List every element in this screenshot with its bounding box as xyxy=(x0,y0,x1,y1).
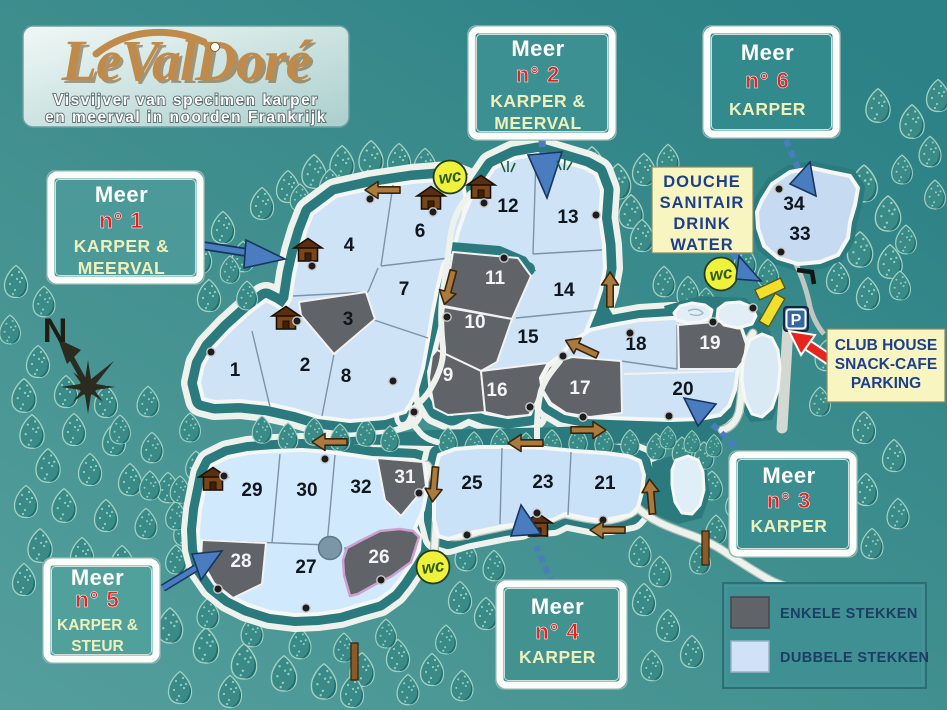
svg-text:16: 16 xyxy=(486,380,507,401)
svg-text:Visvijver van specimen karper: Visvijver van specimen karper xyxy=(53,92,319,109)
svg-text:MEERVAL: MEERVAL xyxy=(78,258,165,278)
svg-text:11: 11 xyxy=(485,268,506,289)
svg-text:14: 14 xyxy=(553,280,575,301)
svg-text:4: 4 xyxy=(344,235,355,256)
svg-text:KARPER &: KARPER & xyxy=(74,236,169,256)
svg-text:n° 3: n° 3 xyxy=(767,488,812,513)
svg-text:34: 34 xyxy=(783,194,805,215)
svg-text:2: 2 xyxy=(300,355,311,376)
svg-text:Meer: Meer xyxy=(95,182,148,207)
svg-text:Meer: Meer xyxy=(531,594,584,619)
svg-text:29: 29 xyxy=(241,480,262,501)
svg-text:12: 12 xyxy=(497,196,518,217)
svg-text:en meerval in noorden Frankrij: en meerval in noorden Frankrijk xyxy=(45,109,327,126)
svg-text:DOUCHE: DOUCHE xyxy=(663,173,741,191)
svg-text:n° 5: n° 5 xyxy=(75,587,120,612)
svg-text:27: 27 xyxy=(295,557,316,578)
svg-text:3: 3 xyxy=(343,309,354,330)
svg-text:KARPER: KARPER xyxy=(751,516,828,536)
svg-text:KARPER &: KARPER & xyxy=(57,617,138,634)
svg-text:23: 23 xyxy=(532,472,553,493)
svg-text:30: 30 xyxy=(296,480,317,501)
svg-text:n° 6: n° 6 xyxy=(745,68,790,93)
svg-text:n° 4: n° 4 xyxy=(535,619,580,644)
svg-text:N: N xyxy=(43,312,68,350)
svg-text:25: 25 xyxy=(461,473,483,494)
svg-text:28: 28 xyxy=(230,551,251,572)
svg-text:1: 1 xyxy=(230,360,241,381)
svg-text:10: 10 xyxy=(464,312,485,333)
svg-text:KARPER: KARPER xyxy=(519,647,596,667)
svg-text:KARPER: KARPER xyxy=(729,99,806,119)
svg-text:6: 6 xyxy=(415,221,426,242)
svg-text:KARPER &: KARPER & xyxy=(490,91,585,111)
svg-text:CLUB HOUSE: CLUB HOUSE xyxy=(835,337,937,354)
svg-text:STEUR: STEUR xyxy=(71,638,124,655)
svg-text:ENKELE STEKKEN: ENKELE STEKKEN xyxy=(780,606,918,622)
svg-text:31: 31 xyxy=(394,467,416,488)
svg-text:DRINK: DRINK xyxy=(673,215,730,233)
svg-text:21: 21 xyxy=(594,473,616,494)
svg-text:PARKING: PARKING xyxy=(851,375,921,392)
svg-text:20: 20 xyxy=(672,379,693,400)
svg-text:P: P xyxy=(791,312,802,329)
svg-text:19: 19 xyxy=(699,333,720,354)
svg-text:32: 32 xyxy=(350,477,371,498)
svg-text:Meer: Meer xyxy=(762,463,815,488)
svg-text:Meer: Meer xyxy=(741,40,794,65)
svg-text:Meer: Meer xyxy=(511,36,564,61)
svg-text:17: 17 xyxy=(569,378,590,399)
svg-text:WATER: WATER xyxy=(670,236,733,254)
svg-text:n° 2: n° 2 xyxy=(516,62,561,87)
svg-text:MEERVAL: MEERVAL xyxy=(494,113,581,133)
svg-text:8: 8 xyxy=(341,366,352,387)
svg-text:DUBBELE STEKKEN: DUBBELE STEKKEN xyxy=(780,650,929,666)
svg-text:n° 1: n° 1 xyxy=(99,208,144,233)
svg-text:26: 26 xyxy=(368,547,389,568)
svg-text:15: 15 xyxy=(517,327,539,348)
svg-text:SANITAIR: SANITAIR xyxy=(660,194,745,212)
svg-text:33: 33 xyxy=(789,224,810,245)
svg-text:7: 7 xyxy=(399,279,410,300)
svg-text:9: 9 xyxy=(443,365,454,386)
svg-text:13: 13 xyxy=(557,207,578,228)
svg-text:SNACK-CAFE: SNACK-CAFE xyxy=(835,356,937,373)
